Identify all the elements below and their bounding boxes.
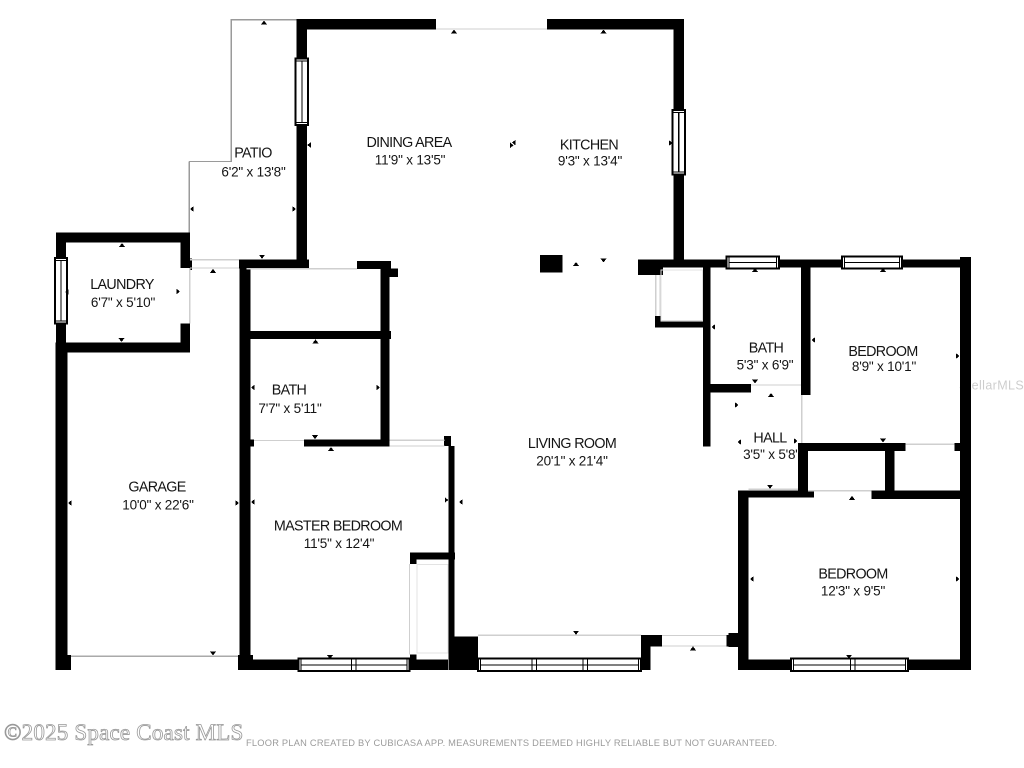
- svg-text:PATIO: PATIO: [234, 146, 272, 162]
- svg-text:6'2" x 13'8": 6'2" x 13'8": [221, 165, 286, 180]
- svg-text:BATH: BATH: [749, 341, 784, 357]
- svg-text:5'3" x 6'9": 5'3" x 6'9": [737, 358, 794, 373]
- svg-text:20'1" x 21'4": 20'1" x 21'4": [536, 454, 608, 469]
- svg-text:BATH: BATH: [272, 383, 307, 399]
- svg-text:StellarMLS: StellarMLS: [959, 379, 1024, 393]
- svg-text:7'7" x 5'11": 7'7" x 5'11": [258, 401, 322, 416]
- svg-text:MASTER BEDROOM: MASTER BEDROOM: [274, 519, 402, 535]
- svg-text:10'0" x 22'6": 10'0" x 22'6": [122, 498, 194, 513]
- svg-text:GARAGE: GARAGE: [128, 480, 185, 496]
- svg-text:12'3" x 9'5": 12'3" x 9'5": [821, 584, 886, 599]
- svg-text:LIVING ROOM: LIVING ROOM: [528, 436, 616, 452]
- svg-text:BEDROOM: BEDROOM: [848, 344, 917, 360]
- svg-text:11'5" x 12'4": 11'5" x 12'4": [304, 536, 375, 551]
- svg-text:11'9" x 13'5": 11'9" x 13'5": [375, 153, 446, 168]
- svg-text:9'3" x 13'4": 9'3" x 13'4": [558, 154, 623, 169]
- svg-text:©2025 Space Coast MLS: ©2025 Space Coast MLS: [4, 720, 244, 745]
- svg-text:KITCHEN: KITCHEN: [560, 138, 619, 154]
- svg-text:FLOOR PLAN CREATED BY CUBICASA: FLOOR PLAN CREATED BY CUBICASA APP. MEAS…: [246, 738, 777, 748]
- svg-text:HALL: HALL: [753, 431, 787, 447]
- svg-text:DINING AREA: DINING AREA: [366, 135, 452, 151]
- svg-text:3'5" x 5'8": 3'5" x 5'8": [743, 447, 800, 462]
- svg-text:BEDROOM: BEDROOM: [818, 567, 887, 583]
- svg-text:LAUNDRY: LAUNDRY: [90, 277, 155, 293]
- svg-text:8'9" x 10'1": 8'9" x 10'1": [852, 359, 917, 374]
- svg-text:6'7" x 5'10": 6'7" x 5'10": [91, 295, 156, 310]
